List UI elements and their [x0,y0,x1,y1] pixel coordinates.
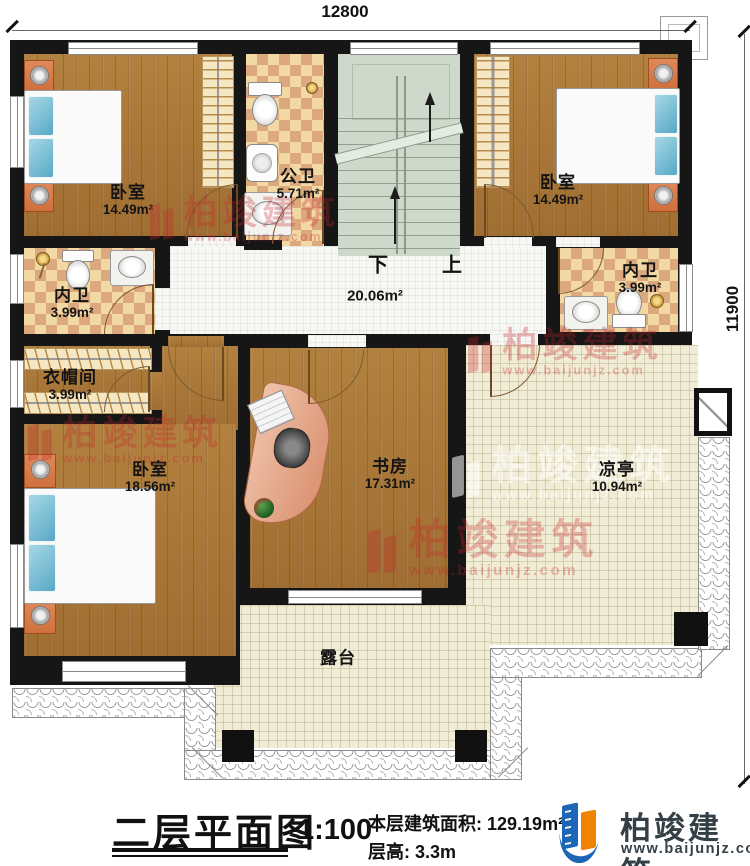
lamp-icon [654,64,673,83]
lamp-icon [31,460,50,479]
logo-swoosh [556,826,599,865]
floor-area-value: 129.19m² [487,814,564,834]
nightstand [648,180,678,212]
dimension-line-top [12,30,690,31]
door-opening [490,334,538,345]
brand-website: www.baijunjz.com [621,841,750,857]
lamp-icon [654,186,673,205]
wardrobe [476,56,510,188]
railing [12,688,186,718]
pillow [28,138,54,178]
room-label-pavilion: 凉亭 10.94m² [592,460,642,494]
nightstand [648,58,678,90]
window [10,96,24,168]
column-base [694,388,732,436]
window [679,264,693,332]
door-opening [484,237,532,247]
door-opening [150,372,162,410]
nightstand [24,454,56,488]
title-underline-thin [112,855,288,857]
sink-basin [572,301,600,323]
window [10,254,24,304]
shower-valve-icon [306,82,318,94]
column [455,730,487,762]
stair-direction-arrow [425,92,435,142]
lamp-icon [30,66,49,85]
pillow [28,544,56,592]
nightstand [24,180,54,212]
floor-area-line: 本层建筑面积: 129.19m² [368,810,564,836]
pillow [28,96,54,136]
washer-drum-icon [252,153,272,173]
window [10,360,24,408]
room-label-ensuite-right: 内卫 3.99m² [619,261,662,295]
room-label-bedroom-bl: 卧室 18.56m² [125,460,175,494]
shower-valve-icon [650,294,664,308]
door-opening [168,336,224,347]
lamp-icon [30,186,49,205]
pillow [28,494,56,542]
terrace-floor [214,605,490,748]
room-label-bedroom-tr: 卧室 14.49m² [533,173,583,207]
sliding-door [288,590,422,604]
stairs-up-label: 上 [442,249,462,278]
floor-height-value: 3.3m [415,842,456,862]
room-label-ensuite-left: 内卫 3.99m² [51,286,94,320]
floor-plan: 下 上 [0,0,750,866]
window [10,544,24,628]
washing-machine [246,144,278,182]
sink-basin [118,256,146,278]
stairs-down-label: 下 [368,249,388,278]
toilet [252,94,278,126]
floor-area-label: 本层建筑面积: [368,814,482,834]
toilet-tank [612,314,646,328]
railing [490,648,702,678]
wardrobe [24,348,152,370]
pillow [654,94,678,134]
column [674,612,708,646]
door-opening [556,237,600,247]
room-label-cloakroom: 衣帽间 3.99m² [43,368,97,402]
pillow [654,136,678,176]
window [490,42,640,55]
room-label-hallway: 20.06m² [347,289,403,306]
dimension-height: 11900 [723,267,741,351]
wardrobe [202,56,234,188]
room-label-public-bath: 公卫 5.71m² [277,167,320,201]
room-label-terrace: 露台 [320,648,356,667]
floor-height-label: 层高: [368,842,410,862]
nightstand [24,60,54,92]
window [350,42,458,55]
dimension-line-right [744,34,745,784]
door-opening [155,288,170,330]
lamp-icon [31,606,50,625]
column [222,730,254,762]
railing [490,676,522,780]
door-opening [188,237,236,247]
nightstand [24,600,56,634]
stair-direction-arrow [390,186,400,244]
title-underline [112,848,288,852]
plant [254,498,274,518]
room-label-study: 书房 17.31m² [365,457,415,491]
window [62,661,186,682]
plan-scale: 1:100 [298,814,372,847]
door-opening [308,335,366,347]
floor-height-line: 层高: 3.3m [368,838,456,864]
dimension-width: 12800 [305,2,385,22]
window [68,42,198,55]
room-label-bedroom-tl: 卧室 14.49m² [103,183,153,217]
brand-logo-icon [558,802,616,860]
